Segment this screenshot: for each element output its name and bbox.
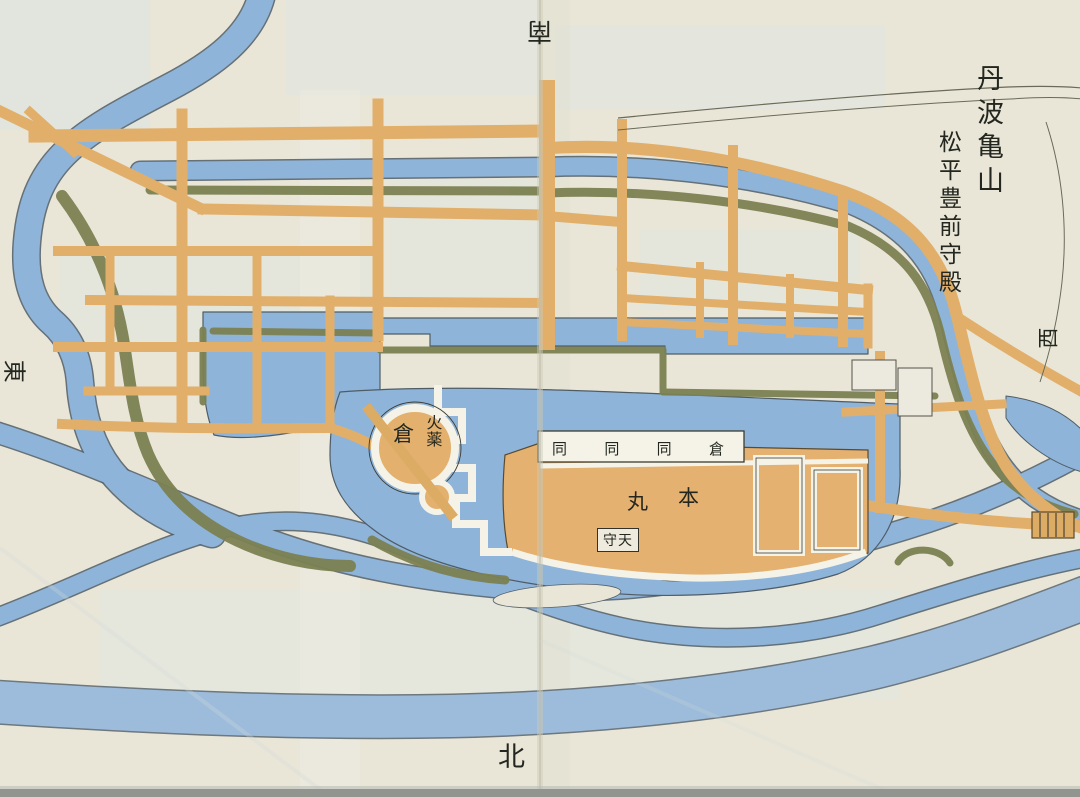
ne-block-1 [852, 360, 896, 390]
storehouse-ditto-2: 同 [604, 438, 619, 459]
bridge [1032, 512, 1074, 538]
compass-west-label: 西 [1036, 328, 1060, 349]
photo-bottom-edge [0, 786, 1080, 797]
storehouse-kura: 倉 [709, 438, 724, 459]
storehouse-ditto-1: 同 [552, 438, 567, 459]
gunpowder-label: 火薬 [423, 414, 441, 448]
title-lord-name: 松平豊前守殿 [934, 130, 960, 298]
honmaru-label-hon: 本 [678, 486, 699, 510]
storehouse-row-labels: 同 同 同 倉 [552, 436, 724, 460]
compass-north-label: 北 [498, 742, 525, 773]
map-painting [0, 0, 1080, 797]
gunpowder-store-label: 倉 [393, 422, 414, 446]
storehouse-ditto-3: 同 [657, 438, 672, 459]
honmaru-label-maru: 丸 [627, 490, 648, 514]
compass-east-label: 東 [0, 360, 26, 383]
castle-town-map: 丹波亀山 松平豊前守殿 南 北 東 西 火薬 倉 同 同 同 倉 丸 本 守天 [0, 0, 1080, 797]
tenshu-keep-label: 守天 [597, 528, 639, 552]
title-province-castle: 丹波亀山 [972, 64, 1003, 200]
compass-south-label: 南 [527, 16, 552, 45]
ne-block-2 [898, 368, 932, 416]
